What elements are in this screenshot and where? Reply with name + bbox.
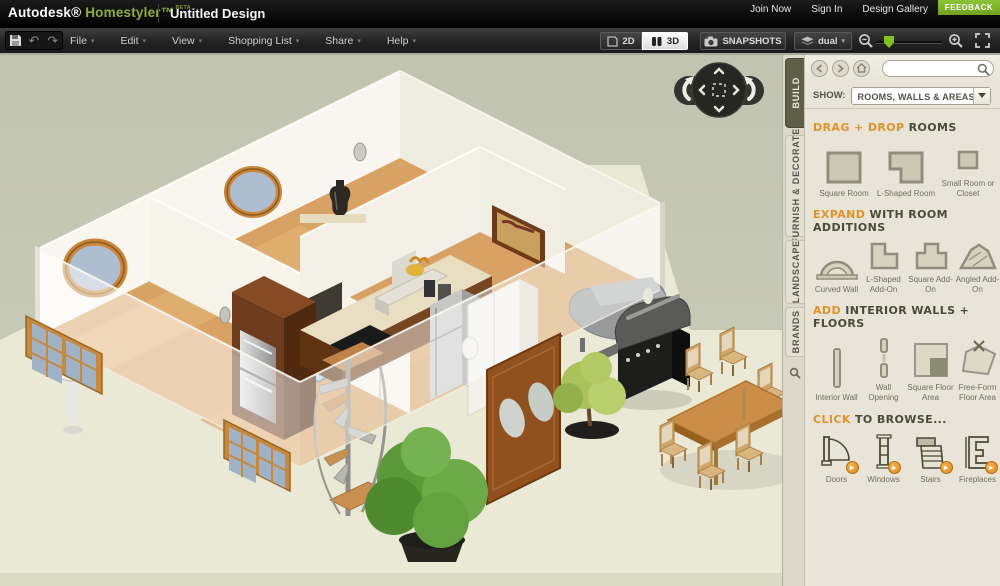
square-addon-icon (911, 240, 951, 272)
forward-button[interactable] (832, 60, 849, 77)
small-room-icon (955, 140, 981, 176)
menu-view[interactable]: View (172, 35, 202, 47)
tab-build[interactable]: BUILD (785, 58, 805, 128)
free-form-floor-area-icon (957, 338, 999, 380)
homestyler-wordmark: Homestyler™ (85, 5, 174, 20)
catalog-search-input[interactable] (890, 62, 976, 75)
item-browse-stairs[interactable]: ▸ Stairs (907, 432, 954, 485)
save-icon (9, 34, 22, 47)
brand-logo: Autodesk® Homestyler™BETA (8, 5, 191, 20)
file-actions-group: ↶ ↷ (5, 31, 63, 50)
build-sections: DRAG + DROP ROOMS Square Room L-Shaped R… (805, 111, 1000, 484)
dropdown-button[interactable] (973, 88, 990, 104)
fullscreen-icon (975, 33, 990, 48)
item-curved-wall[interactable]: Curved Wall (813, 250, 860, 295)
show-filter-row: SHOW: ROOMS, WALLS & AREAS (805, 83, 1000, 109)
browse-badge-icon: ▸ (888, 461, 901, 474)
item-browse-fireplaces[interactable]: ▸ Fireplaces (954, 432, 1000, 485)
menu-shopping-list[interactable]: Shopping List (228, 35, 299, 47)
view-3d-button[interactable]: 3D (642, 32, 688, 50)
item-browse-doors[interactable]: ▸ Doors (813, 432, 860, 485)
design-canvas[interactable] (0, 55, 782, 586)
account-links: Join Now Sign In Design Gallery (750, 4, 928, 15)
app-header: Autodesk® Homestyler™BETA Untitled Desig… (0, 0, 1000, 28)
section-header: ADD INTERIOR WALLS + FLOORS (813, 304, 1000, 330)
join-now-link[interactable]: Join Now (750, 4, 791, 15)
undo-button[interactable]: ↶ (25, 32, 44, 49)
back-button[interactable] (811, 60, 828, 77)
search-icon (789, 367, 801, 379)
section-header: DRAG + DROP ROOMS (813, 121, 1000, 134)
item-browse-windows[interactable]: ▸ Windows (860, 432, 907, 485)
title-divider (158, 4, 159, 23)
interior-wall-icon (830, 346, 844, 390)
section-header: CLICK TO BROWSE... (813, 413, 1000, 426)
section-room-additions: EXPAND WITH ROOM ADDITIONS Curved Wall L… (813, 208, 1000, 294)
navigation-compass[interactable] (672, 60, 766, 122)
main-toolbar: ↶ ↷ File Edit View Shopping List Share H… (0, 28, 1000, 55)
save-button[interactable] (6, 32, 25, 49)
home-icon (856, 63, 867, 73)
tab-furnish-decorate[interactable]: FURNISH & DECORATE (785, 135, 805, 237)
wall-opening-icon (877, 336, 891, 380)
browse-badge-icon: ▸ (985, 461, 998, 474)
item-square-addon[interactable]: Square Add-On (907, 240, 954, 294)
show-label: SHOW: (813, 90, 846, 101)
show-dropdown[interactable]: ROOMS, WALLS & AREAS (851, 87, 991, 105)
homestyler-app: { "header": { "autodesk": "Autodesk®", "… (0, 0, 1000, 586)
section-header: EXPAND WITH ROOM ADDITIONS (813, 208, 1000, 234)
item-square-floor-area[interactable]: Square Floor Area (907, 340, 954, 402)
zoom-out-button[interactable] (858, 33, 874, 54)
undo-icon: ↶ (29, 34, 40, 47)
menu-file[interactable]: File (70, 35, 94, 47)
menu-edit[interactable]: Edit (120, 35, 146, 47)
section-interior-walls-floors: ADD INTERIOR WALLS + FLOORS Interior Wal… (813, 304, 1000, 402)
build-panel: SHOW: ROOMS, WALLS & AREAS DRAG + DROP R… (804, 55, 1000, 586)
section-click-to-browse: CLICK TO BROWSE... ▸ Doors (813, 413, 1000, 485)
magnifier-plus-icon (948, 33, 964, 49)
round-mirror[interactable] (227, 169, 279, 215)
autodesk-wordmark: Autodesk® (8, 5, 81, 20)
2d-view-icon (607, 36, 618, 47)
zoom-slider[interactable] (876, 41, 942, 44)
redo-button[interactable]: ↷ (43, 32, 62, 49)
catalog-search-box (882, 60, 994, 77)
view-2d-button[interactable]: 2D (600, 32, 642, 50)
l-shaped-room-icon (885, 150, 927, 186)
tab-brands[interactable]: BRANDS (785, 307, 805, 357)
3d-view-icon (651, 36, 663, 47)
chevron-down-icon (978, 93, 986, 98)
item-square-room[interactable]: Square Room (813, 150, 875, 199)
tab-search[interactable] (786, 363, 804, 383)
square-floor-area-icon (911, 340, 951, 380)
item-l-shaped-addon[interactable]: L-Shaped Add-On (860, 240, 907, 294)
browse-badge-icon: ▸ (846, 461, 859, 474)
redo-icon: ↷ (47, 34, 58, 47)
back-arrow-icon (815, 64, 824, 73)
square-room-icon (824, 150, 864, 186)
forward-arrow-icon (836, 64, 845, 73)
browse-badge-icon: ▸ (940, 461, 953, 474)
menu-share[interactable]: Share (325, 35, 361, 47)
show-dropdown-value: ROOMS, WALLS & AREAS (858, 92, 975, 102)
item-l-shaped-room[interactable]: L-Shaped Room (875, 150, 937, 199)
l-shaped-addon-icon (864, 240, 904, 272)
magnifier-minus-icon (858, 33, 874, 49)
camera-icon (704, 36, 718, 47)
zoom-slider-thumb[interactable] (884, 36, 894, 48)
item-small-room[interactable]: Small Room or Closet (937, 140, 999, 198)
design-gallery-link[interactable]: Design Gallery (862, 4, 928, 15)
feedback-button[interactable]: FEEDBACK (938, 0, 1000, 15)
document-title: Untitled Design (170, 6, 265, 21)
sign-in-link[interactable]: Sign In (811, 4, 842, 15)
item-wall-opening[interactable]: Wall Opening (860, 336, 907, 402)
section-drag-drop-rooms: DRAG + DROP ROOMS Square Room L-Shaped R… (813, 121, 1000, 198)
zoom-in-button[interactable] (948, 33, 964, 54)
fullscreen-button[interactable] (975, 33, 990, 53)
item-free-form-floor-area[interactable]: Free-Form Floor Area (954, 338, 1000, 402)
search-icon[interactable] (977, 63, 990, 76)
snapshots-button[interactable]: SNAPSHOTS (700, 32, 786, 50)
panel-nav (805, 55, 1000, 81)
layers-icon (801, 36, 814, 47)
menu-help[interactable]: Help (387, 35, 416, 47)
item-interior-wall[interactable]: Interior Wall (813, 346, 860, 403)
scene-3d (0, 55, 782, 586)
angled-addon-icon (957, 240, 999, 272)
sidebar-tabstrip: BUILD FURNISH & DECORATE LANDSCAPE BRAND… (782, 55, 804, 586)
item-angled-addon[interactable]: Angled Add-On (954, 240, 1000, 294)
curved-wall-icon (815, 250, 859, 282)
tab-landscape[interactable]: LANDSCAPE (785, 240, 805, 304)
menu-bar: File Edit View Shopping List Share Help (70, 28, 416, 53)
dual-view-dropdown[interactable]: dual (794, 32, 852, 50)
home-button[interactable] (853, 60, 870, 77)
